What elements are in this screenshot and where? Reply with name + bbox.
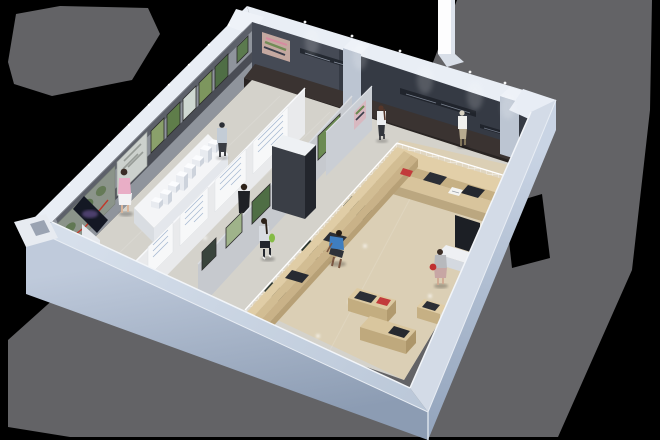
red-bag bbox=[430, 264, 437, 271]
render-canvas bbox=[0, 0, 660, 440]
monolith-pillar bbox=[272, 135, 316, 219]
exhibition-render bbox=[0, 0, 660, 440]
